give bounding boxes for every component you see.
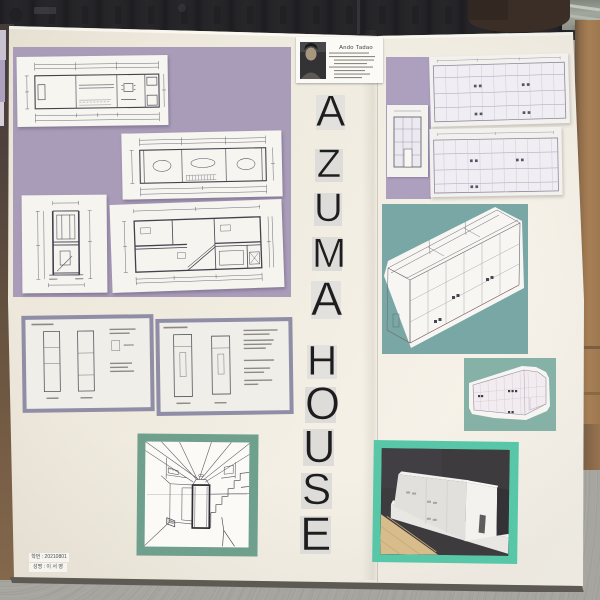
svg-text:Ando Tadao: Ando Tadao (339, 45, 373, 51)
